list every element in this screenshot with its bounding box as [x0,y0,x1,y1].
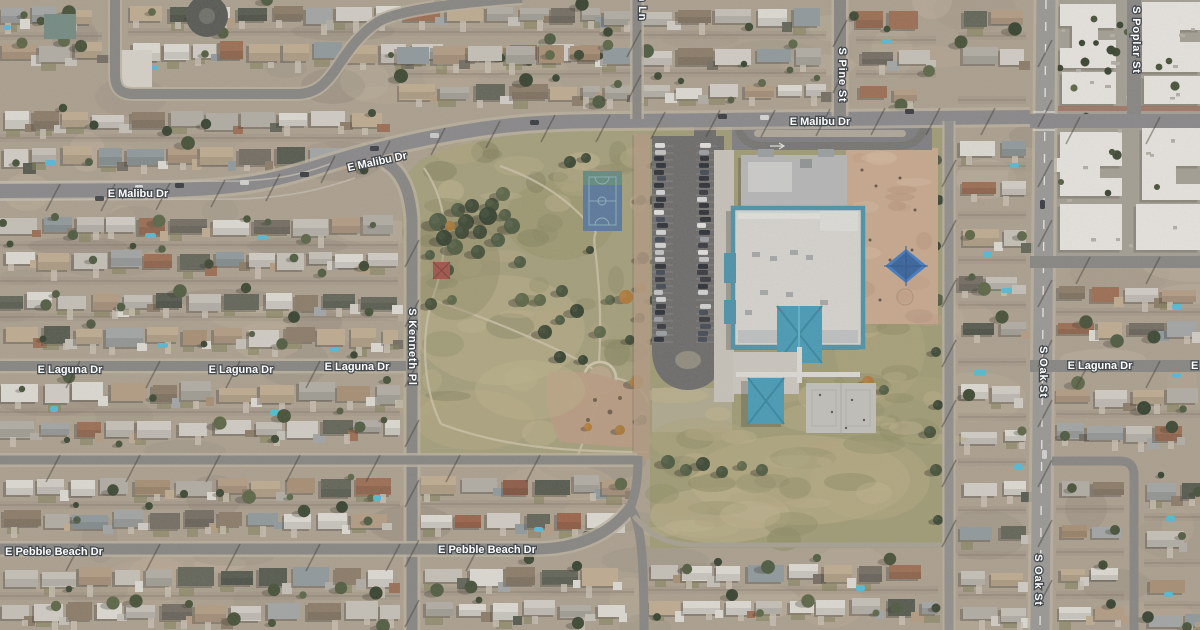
svg-text:S Poplar St: S Poplar St [1130,6,1142,73]
svg-text:E Laguna Dr: E Laguna Dr [1068,360,1134,372]
svg-text:E Malibu Dr: E Malibu Dr [108,188,169,200]
svg-text:E Laguna Dr: E Laguna Dr [209,364,275,376]
svg-text:S Pine St: S Pine St [836,48,848,103]
svg-text:S Oak St: S Oak St [1032,554,1044,606]
svg-text:E Laguna Dr: E Laguna Dr [38,364,104,376]
svg-text:S Kenneth Pl: S Kenneth Pl [406,308,418,385]
svg-text:E Malibu Dr: E Malibu Dr [790,116,851,128]
svg-text:n Ln: n Ln [636,0,648,21]
svg-text:E Lag: E Lag [1191,360,1200,372]
svg-text:E Pebble Beach Dr: E Pebble Beach Dr [5,546,104,558]
svg-text:S Oak St: S Oak St [1037,346,1049,398]
svg-text:E Pebble Beach Dr: E Pebble Beach Dr [438,544,537,556]
svg-text:E Laguna Dr: E Laguna Dr [325,361,391,373]
